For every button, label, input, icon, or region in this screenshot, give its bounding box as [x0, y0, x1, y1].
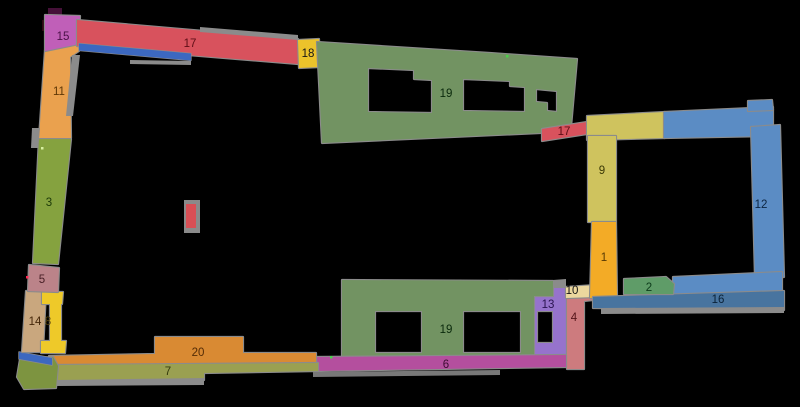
svg-text:19: 19 — [440, 324, 453, 336]
svg-text:9: 9 — [599, 165, 605, 177]
svg-text:7: 7 — [165, 366, 171, 378]
svg-text:17: 17 — [558, 126, 571, 138]
svg-text:18: 18 — [302, 48, 315, 60]
svg-text:5: 5 — [39, 274, 45, 286]
svg-text:19: 19 — [440, 88, 453, 100]
svg-text:2: 2 — [646, 282, 652, 294]
svg-text:11: 11 — [53, 86, 65, 98]
svg-text:4: 4 — [571, 312, 578, 324]
svg-text:15: 15 — [57, 31, 70, 43]
svg-text:10: 10 — [566, 285, 579, 297]
svg-text:1: 1 — [601, 252, 607, 264]
svg-text:14: 14 — [29, 316, 42, 328]
svg-text:17: 17 — [184, 38, 197, 50]
svg-text:8: 8 — [45, 316, 51, 328]
svg-text:12: 12 — [755, 199, 768, 211]
svg-text:6: 6 — [443, 359, 449, 371]
svg-text:3: 3 — [46, 197, 52, 209]
svg-text:16: 16 — [712, 294, 725, 306]
svg-text:13: 13 — [542, 299, 555, 311]
svg-text:20: 20 — [192, 347, 205, 359]
